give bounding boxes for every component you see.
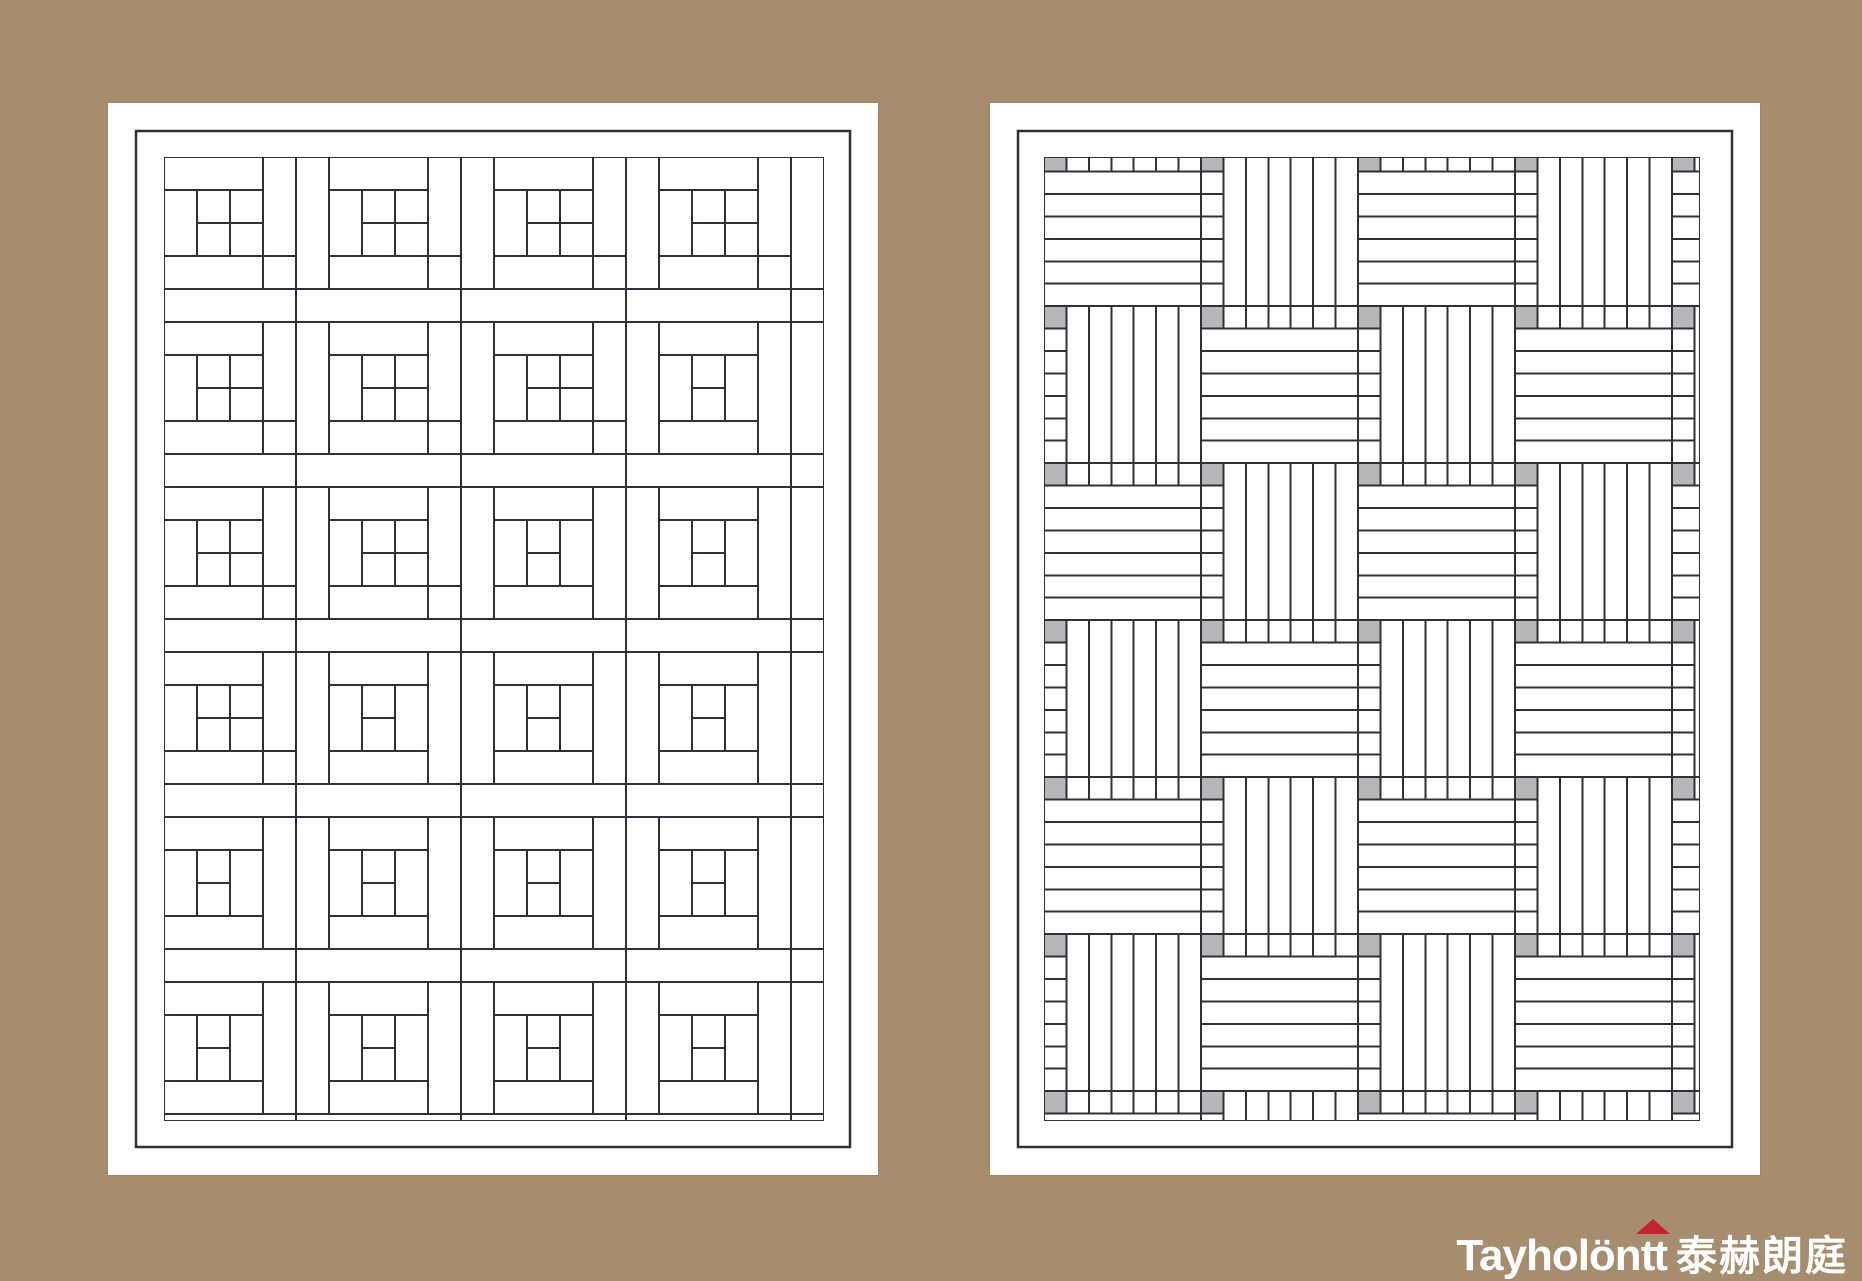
left-pattern-page <box>108 103 878 1175</box>
logo-cjk-text: 泰赫朗庭 <box>1676 1222 1848 1281</box>
logo-roof-icon <box>1636 1219 1670 1234</box>
brochure-sheet: Tayholöntt 泰赫朗庭 <box>0 0 1862 1281</box>
logo-latin-text: Tayholön <box>1456 1231 1640 1281</box>
brand-logo: Tayholöntt 泰赫朗庭 <box>1456 1222 1848 1281</box>
logo-tt-text: tt <box>1641 1231 1666 1281</box>
basketweave-parquet-diagram <box>990 103 1760 1175</box>
staircase-parquet-diagram <box>108 103 878 1175</box>
right-pattern-page <box>990 103 1760 1175</box>
